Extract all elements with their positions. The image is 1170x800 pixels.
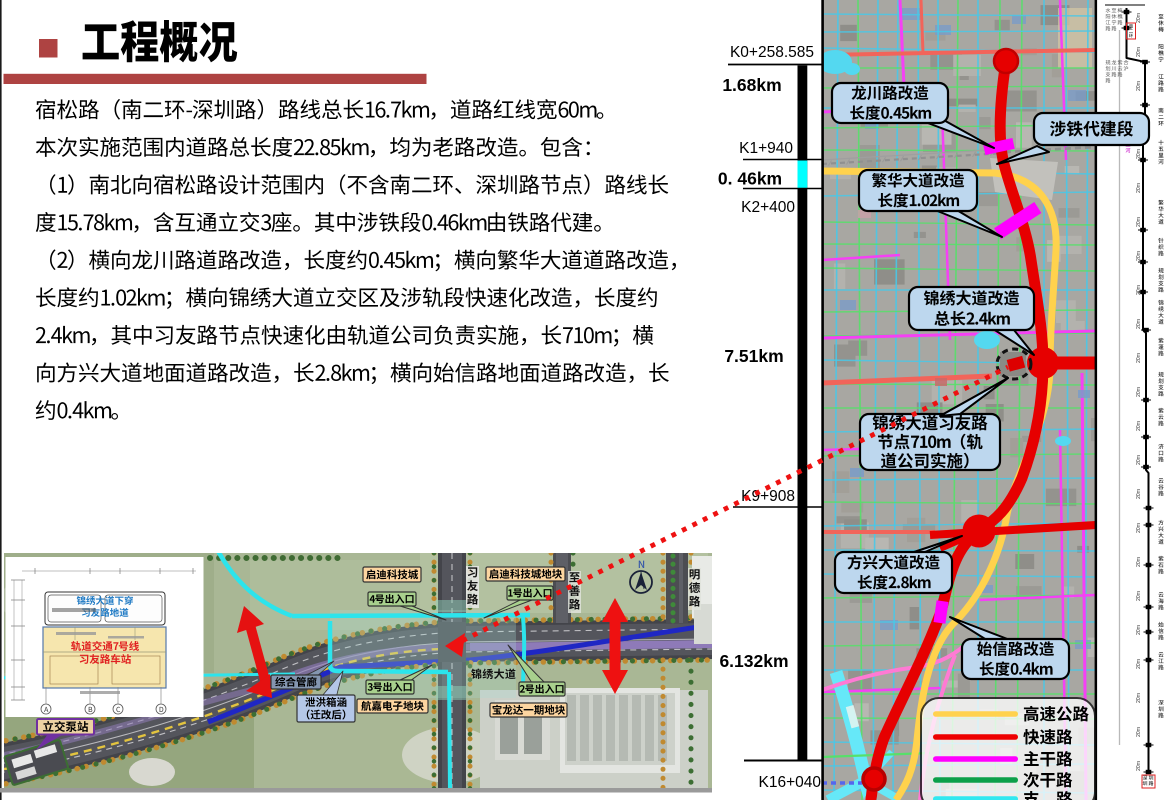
svg-text:20m: 20m <box>1136 47 1142 57</box>
svg-text:20m: 20m <box>1136 13 1142 23</box>
svg-text:K9+908: K9+908 <box>741 488 795 505</box>
svg-text:20m: 20m <box>1136 727 1142 737</box>
svg-text:K0+258.585: K0+258.585 <box>730 44 814 61</box>
svg-text:20m: 20m <box>1136 319 1142 329</box>
svg-text:20m: 20m <box>1136 421 1142 431</box>
svg-text:20m: 20m <box>1136 217 1142 227</box>
svg-text:0. 46km: 0. 46km <box>718 169 782 189</box>
svg-text:7.51km: 7.51km <box>724 346 783 366</box>
svg-text:20m: 20m <box>1136 251 1142 261</box>
svg-text:6.132km: 6.132km <box>719 651 788 671</box>
svg-text:20m: 20m <box>1136 353 1142 363</box>
svg-text:K16+040: K16+040 <box>759 774 822 791</box>
svg-text:20m: 20m <box>1136 455 1142 465</box>
svg-text:20m: 20m <box>1136 81 1142 91</box>
svg-text:K1+940: K1+940 <box>739 140 793 157</box>
svg-text:20m: 20m <box>1136 523 1142 533</box>
svg-text:K2+400: K2+400 <box>741 199 795 216</box>
svg-text:20m: 20m <box>1136 693 1142 703</box>
svg-text:20m: 20m <box>1136 591 1142 601</box>
svg-text:20m: 20m <box>1136 183 1142 193</box>
svg-text:1.68km: 1.68km <box>722 75 781 95</box>
svg-text:20m: 20m <box>1136 625 1142 635</box>
svg-text:20m: 20m <box>1136 489 1142 499</box>
svg-text:20m: 20m <box>1136 387 1142 397</box>
svg-text:20m: 20m <box>1136 285 1142 295</box>
svg-text:20m: 20m <box>1136 557 1142 567</box>
svg-text:20m: 20m <box>1136 659 1142 669</box>
svg-text:20m: 20m <box>1136 149 1142 159</box>
svg-text:20m: 20m <box>1136 761 1142 771</box>
